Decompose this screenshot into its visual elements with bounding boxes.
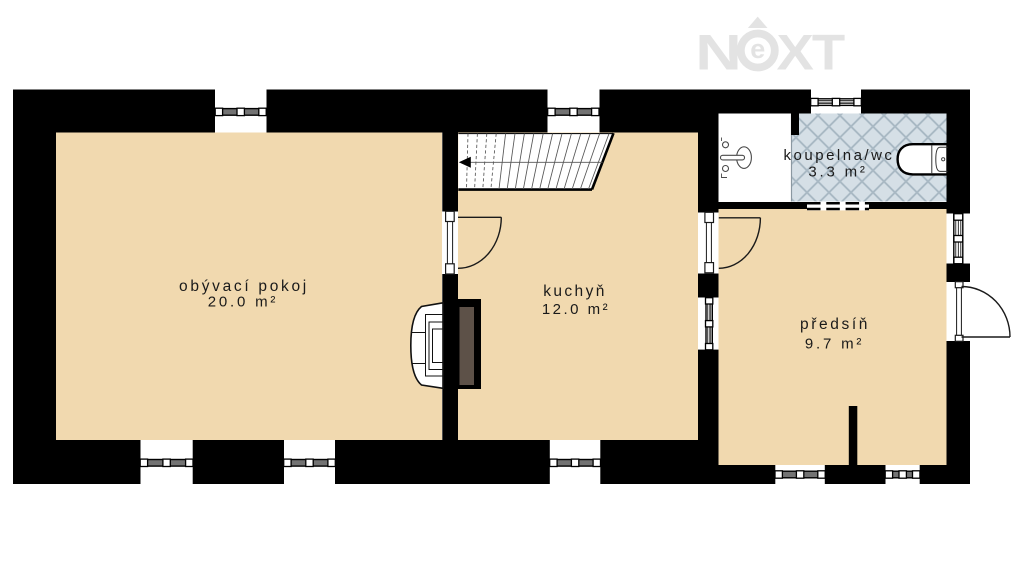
svg-text:e: e — [750, 34, 765, 64]
svg-text:9.7 m²: 9.7 m² — [805, 336, 864, 353]
svg-text:X: X — [777, 25, 814, 81]
svg-text:3.3 m²: 3.3 m² — [808, 164, 867, 181]
svg-text:kuchyň: kuchyň — [543, 283, 607, 300]
svg-text:N: N — [695, 25, 742, 80]
svg-text:12.0 m²: 12.0 m² — [542, 301, 610, 318]
svg-text:T: T — [812, 26, 845, 81]
svg-text:koupelna/wc: koupelna/wc — [784, 147, 895, 164]
svg-text:předsíň: předsíň — [800, 316, 870, 333]
svg-text:20.0 m²: 20.0 m² — [208, 294, 278, 311]
svg-text:obývací pokoj: obývací pokoj — [179, 278, 309, 295]
